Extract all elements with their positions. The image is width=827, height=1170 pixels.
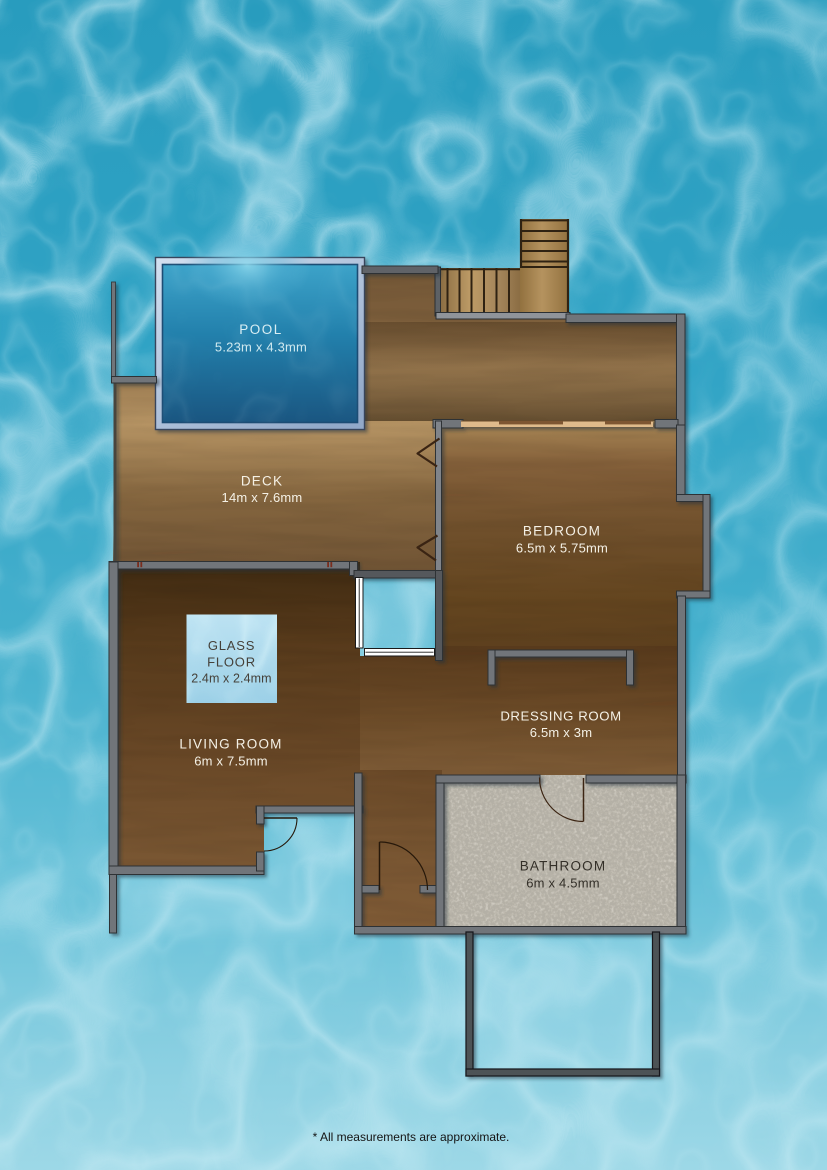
svg-text:6.5m x 5.75mm: 6.5m x 5.75mm <box>516 541 608 556</box>
svg-text:6m x 7.5mm: 6m x 7.5mm <box>194 754 268 769</box>
svg-text:5.23m x 4.3mm: 5.23m x 4.3mm <box>215 340 307 355</box>
svg-text:BATHROOM: BATHROOM <box>520 859 607 874</box>
svg-text:GLASS: GLASS <box>208 638 255 653</box>
svg-text:DRESSING ROOM: DRESSING ROOM <box>500 709 621 724</box>
svg-text:BEDROOM: BEDROOM <box>523 524 601 539</box>
svg-text:2.4m x 2.4mm: 2.4m x 2.4mm <box>191 672 271 686</box>
svg-text:POOL: POOL <box>239 322 283 337</box>
svg-text:DECK: DECK <box>241 474 283 489</box>
svg-text:* All measurements are approxi: * All measurements are approximate. <box>313 1130 510 1144</box>
svg-text:6.5m x 3m: 6.5m x 3m <box>530 725 592 740</box>
svg-text:FLOOR: FLOOR <box>207 655 256 670</box>
svg-text:LIVING ROOM: LIVING ROOM <box>179 737 282 752</box>
svg-text:6m x 4.5mm: 6m x 4.5mm <box>526 876 600 891</box>
svg-text:14m x 7.6mm: 14m x 7.6mm <box>222 490 303 505</box>
